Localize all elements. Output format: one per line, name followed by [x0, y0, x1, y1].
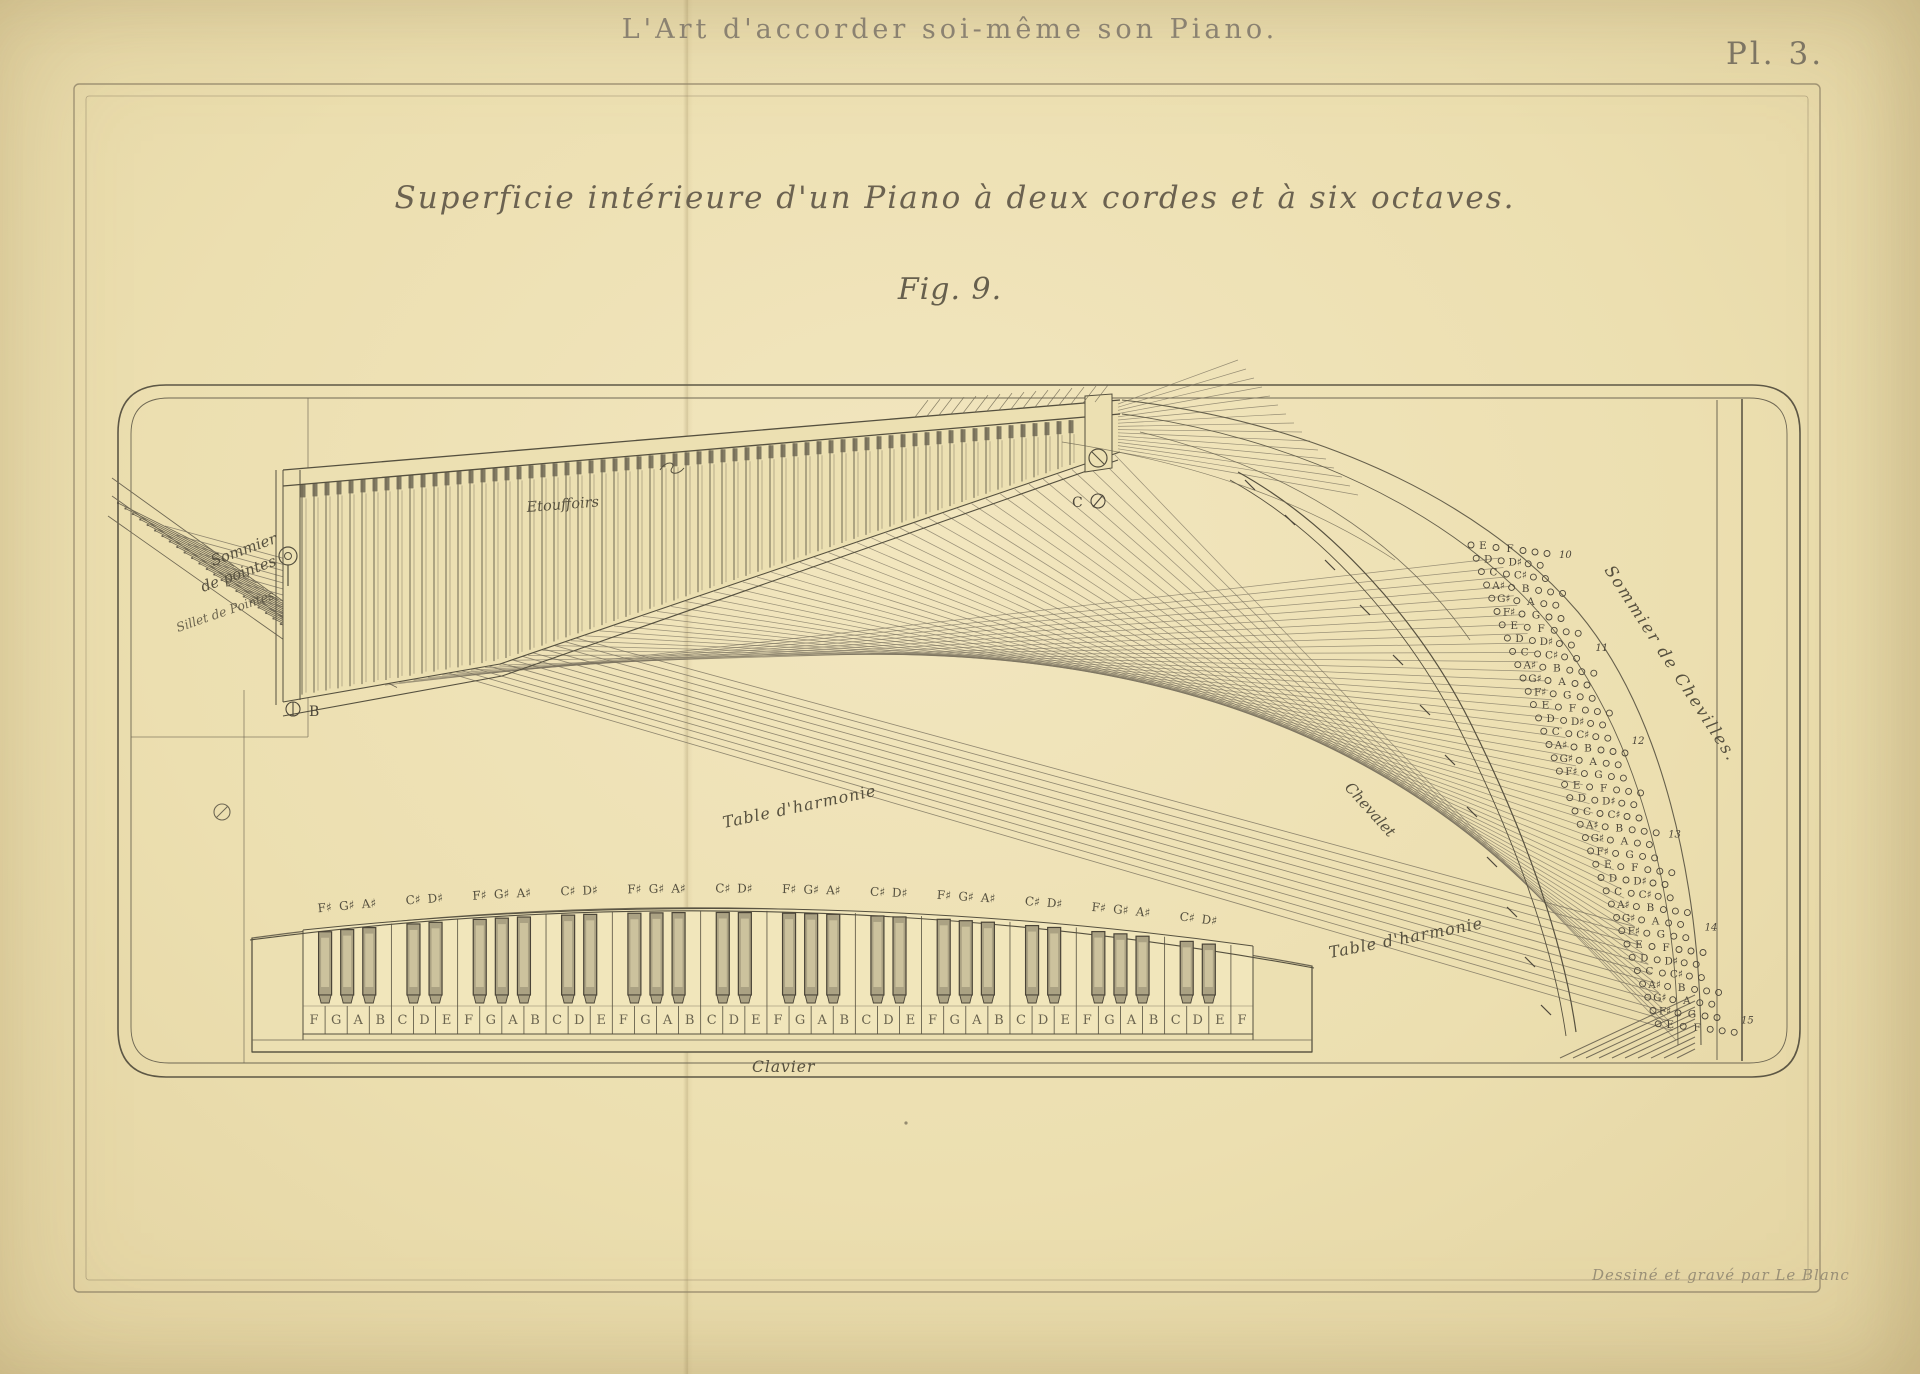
- damper-head: [661, 454, 666, 467]
- tuning-pin: [1537, 562, 1543, 568]
- pin-note-label: C♯: [1514, 570, 1527, 582]
- tuning-pin: [1494, 609, 1500, 615]
- black-key-foot: [783, 995, 795, 1003]
- string-hook: [987, 394, 1000, 411]
- pin-note-label: D: [1484, 553, 1492, 565]
- tuning-pin: [1683, 935, 1689, 941]
- black-key-label: A♯: [360, 896, 377, 911]
- damper-head: [769, 445, 774, 458]
- damper-head: [529, 465, 534, 478]
- damper-head: [721, 449, 726, 462]
- white-key-label: E: [906, 1013, 916, 1028]
- tuning-pin: [1646, 842, 1652, 848]
- white-key-label: A: [662, 1013, 673, 1028]
- gauge-label: 13: [1668, 829, 1681, 840]
- white-key-label: F: [773, 1013, 782, 1028]
- tuning-pin: [1575, 630, 1581, 636]
- black-key-inner: [476, 925, 484, 987]
- hitch-pin-dot: [139, 518, 141, 520]
- hatch-line: [118, 503, 212, 550]
- string-hook: [1011, 392, 1024, 409]
- gauge-label: 15: [1741, 1016, 1754, 1027]
- keyboard-group: FGABCDEFGABCDEFGABCDEFGABCDEFGABCDEFGABC…: [250, 881, 1314, 1052]
- black-key-inner: [1183, 947, 1191, 987]
- black-key-label: F♯: [627, 882, 641, 896]
- tuning-pin: [1558, 616, 1564, 622]
- damper-head: [1021, 424, 1026, 437]
- mark-right-C2: C: [1072, 494, 1105, 511]
- pin-note-label: C: [1552, 726, 1560, 738]
- tuning-pin: [1514, 598, 1520, 604]
- damper-head: [697, 451, 702, 464]
- fan-string-line: [1118, 436, 1318, 450]
- tuning-pin: [1592, 797, 1598, 803]
- tuning-pin: [1631, 802, 1637, 808]
- string-hook: [915, 400, 928, 417]
- circled-mark: [214, 804, 230, 820]
- fan-string-line: [1118, 414, 1286, 423]
- bridge-curve-outer: [1238, 472, 1576, 1032]
- tuning-pin: [1541, 601, 1547, 607]
- black-key-inner: [1050, 933, 1058, 987]
- tuning-pin: [1665, 983, 1671, 989]
- pin-note-label: B: [1553, 663, 1561, 675]
- black-key-foot: [739, 995, 751, 1003]
- white-key-label: D: [419, 1013, 429, 1028]
- hitch-pin-dot: [161, 535, 163, 537]
- tuning-pin: [1545, 678, 1551, 684]
- tuning-pin: [1594, 709, 1600, 715]
- damper-head: [373, 478, 378, 491]
- pin-note-label: B: [1647, 902, 1655, 914]
- white-key-label: C: [1171, 1013, 1181, 1028]
- damper-head: [349, 480, 354, 493]
- hitch-pin-dot: [235, 590, 237, 592]
- tuning-pin: [1588, 720, 1594, 726]
- pin-note-label: D: [1546, 713, 1554, 725]
- pin-note-label: F: [1600, 782, 1607, 794]
- damper-head: [781, 444, 786, 457]
- damper-head: [997, 426, 1002, 439]
- pin-note-label: D: [1515, 633, 1523, 645]
- black-key-inner: [1139, 942, 1147, 987]
- pin-note-label: G: [1563, 689, 1571, 701]
- white-key-label: B: [685, 1013, 695, 1028]
- tuning-pin: [1582, 835, 1588, 841]
- black-key-foot: [650, 995, 662, 1003]
- white-key-label: G: [486, 1013, 496, 1028]
- string-line: [972, 504, 1642, 946]
- tuning-pin: [1571, 744, 1577, 750]
- black-key-label: G♯: [338, 898, 355, 913]
- pin-note-label: B: [1678, 982, 1686, 994]
- tuning-pin: [1608, 774, 1614, 780]
- tuning-pin: [1520, 548, 1526, 554]
- damper-head: [361, 479, 366, 492]
- black-key-inner: [940, 925, 948, 987]
- black-key-foot: [1026, 995, 1038, 1003]
- pin-note-label: F♯: [1503, 607, 1515, 619]
- white-key-label: B: [994, 1013, 1004, 1028]
- piano-interior-diagram: EF10DD♯CC♯A♯BG♯AF♯GEFDD♯11CC♯A♯BG♯AF♯GEF…: [0, 0, 1920, 1374]
- hitch-pin-dot: [124, 507, 126, 509]
- black-key-foot: [982, 995, 994, 1003]
- damper-head: [649, 455, 654, 468]
- white-key-label: A: [816, 1013, 827, 1028]
- pin-note-label: D: [1609, 873, 1617, 885]
- hitch-pin-dot: [169, 540, 171, 542]
- black-key-inner: [652, 919, 660, 987]
- tuning-pin: [1536, 587, 1542, 593]
- white-key-label: A: [507, 1013, 518, 1028]
- pin-note-label: B: [1522, 583, 1530, 595]
- damper-head: [949, 430, 954, 443]
- pin-note-label: C: [1489, 567, 1497, 579]
- pin-note-label: G♯: [1559, 753, 1572, 765]
- black-key-inner: [1094, 938, 1102, 987]
- string-line: [600, 631, 1552, 700]
- black-key-foot: [1092, 995, 1104, 1003]
- string-line: [814, 558, 1603, 842]
- tuning-pin: [1544, 551, 1550, 557]
- tuning-pin: [1530, 574, 1536, 580]
- pin-note-label: C: [1583, 806, 1591, 818]
- tuning-pin: [1678, 921, 1684, 927]
- string-line: [900, 528, 1624, 898]
- black-key-foot: [363, 995, 375, 1003]
- damper-head: [541, 464, 546, 477]
- tuning-pin: [1540, 664, 1546, 670]
- tuning-pin: [1566, 731, 1572, 737]
- pin-note-label: D♯: [1508, 556, 1522, 568]
- white-key-label: F: [1237, 1013, 1246, 1028]
- pin-note-label: A♯: [1522, 660, 1536, 672]
- tuning-pin: [1610, 749, 1616, 755]
- string-line: [614, 626, 1555, 709]
- tuning-pin: [1645, 867, 1651, 873]
- pin-note-label: F♯: [1628, 926, 1640, 938]
- pin-note-label: F♯: [1596, 846, 1608, 858]
- white-key-label: D: [729, 1013, 739, 1028]
- black-key-label: F♯: [782, 882, 796, 896]
- fan-string-line: [1118, 442, 1334, 468]
- pin-note-label: D: [1578, 793, 1586, 805]
- tuning-pin: [1684, 910, 1690, 916]
- pin-note-label: C: [1614, 886, 1622, 898]
- damper-head: [793, 443, 798, 456]
- tuning-pin: [1493, 545, 1499, 551]
- tuning-pin: [1636, 815, 1642, 821]
- black-key-foot: [496, 995, 508, 1003]
- tuning-pin: [1671, 933, 1677, 939]
- damper-head: [925, 432, 930, 445]
- label-chevalet: Chevalet: [1341, 779, 1400, 842]
- damper-head: [937, 431, 942, 444]
- black-key-label: G♯: [649, 882, 665, 896]
- black-key-inner: [741, 919, 749, 987]
- damper-head: [313, 483, 318, 496]
- tuning-pin: [1667, 895, 1673, 901]
- chevalet-tick: [1325, 560, 1335, 570]
- hatch-line: [125, 509, 219, 556]
- pin-note-label: D♯: [1540, 636, 1554, 648]
- tuning-pin: [1484, 582, 1490, 588]
- tuning-pin: [1670, 997, 1676, 1003]
- black-key-label: A♯: [670, 882, 686, 896]
- white-key-label: B: [839, 1013, 849, 1028]
- tuning-pin: [1519, 611, 1525, 617]
- string-line: [800, 562, 1600, 832]
- white-key-label: F: [928, 1013, 937, 1028]
- black-key-label: F♯: [317, 900, 332, 915]
- tuning-pin: [1659, 970, 1665, 976]
- pin-note-label: G♯: [1622, 912, 1635, 924]
- damper-head: [709, 450, 714, 463]
- chevalet-tick: [1445, 755, 1455, 765]
- tuning-pin: [1509, 584, 1515, 590]
- white-key-label: E: [751, 1013, 761, 1028]
- hitch-pin-dot: [280, 623, 282, 625]
- tuning-pin: [1568, 642, 1574, 648]
- black-key-label: D♯: [582, 883, 598, 897]
- tuning-pin: [1556, 641, 1562, 647]
- pin-note-label: G: [1594, 769, 1602, 781]
- damper-head: [829, 440, 834, 453]
- tuning-pin: [1572, 808, 1578, 814]
- tuning-pin: [1535, 651, 1541, 657]
- black-key-foot: [628, 995, 640, 1003]
- tuning-pin: [1589, 695, 1595, 701]
- tuning-pin: [1576, 757, 1582, 763]
- damper-head: [337, 481, 342, 494]
- fan-string-line: [1118, 378, 1254, 410]
- tuning-pin: [1562, 654, 1568, 660]
- chevalet-tick: [1525, 957, 1535, 967]
- hitch-pin-dot: [132, 513, 134, 515]
- damper-head: [301, 484, 306, 497]
- string-line: [957, 509, 1638, 936]
- tuning-pin: [1605, 735, 1611, 741]
- pin-note-label: F♯: [1534, 686, 1546, 698]
- black-key-foot: [673, 995, 685, 1003]
- tuning-pin: [1504, 635, 1510, 641]
- damper-head: [733, 448, 738, 461]
- corner-hatch-line: [1664, 1043, 1695, 1058]
- tuning-pin: [1653, 830, 1659, 836]
- tuning-pin: [1731, 1029, 1737, 1035]
- white-key-label: C: [861, 1013, 871, 1028]
- pin-note-label: G: [1688, 1009, 1696, 1021]
- gauge-label: 11: [1595, 643, 1608, 654]
- white-key-label: E: [597, 1013, 607, 1028]
- pin-note-label: D♯: [1602, 796, 1616, 808]
- tuning-pin: [1644, 930, 1650, 936]
- tuning-pin: [1602, 824, 1608, 830]
- tuning-pin: [1572, 681, 1578, 687]
- pin-note-label: G: [1625, 849, 1633, 861]
- black-key-label: C♯: [560, 884, 576, 899]
- white-key-label: B: [530, 1013, 540, 1028]
- tuning-pin: [1548, 589, 1554, 595]
- tuning-pin: [1686, 973, 1692, 979]
- damper-head: [1045, 422, 1050, 435]
- hitch-pin-dot: [265, 612, 267, 614]
- tuning-pin: [1555, 704, 1561, 710]
- pin-note-label: A♯: [1647, 979, 1661, 991]
- tuning-pin: [1613, 850, 1619, 856]
- pin-note-label: G♯: [1528, 673, 1541, 685]
- fan-string-line: [1118, 396, 1270, 417]
- white-key-label: F: [310, 1013, 319, 1028]
- pin-note-label: C♯: [1607, 809, 1620, 821]
- pin-note-label: F: [1506, 543, 1513, 555]
- tuning-pin: [1530, 702, 1536, 708]
- black-key-inner: [586, 920, 594, 987]
- pin-note-label: A: [1620, 836, 1629, 848]
- black-key-inner: [807, 920, 815, 987]
- pin-note-label: D♯: [1633, 876, 1647, 888]
- label-clavier: Clavier: [752, 1058, 816, 1076]
- damper-head: [457, 471, 462, 484]
- pin-note-label: F: [1569, 703, 1576, 715]
- black-key-label: D♯: [1046, 896, 1063, 911]
- black-key-inner: [1205, 950, 1213, 987]
- black-key-foot: [584, 995, 596, 1003]
- black-key-inner: [829, 920, 837, 987]
- black-key-label: A♯: [825, 883, 841, 897]
- pin-note-label: E: [1510, 620, 1518, 632]
- black-key-label: F♯: [472, 888, 487, 903]
- pin-note-label: G: [1657, 929, 1665, 941]
- tuning-pin: [1619, 800, 1625, 806]
- tuning-pin: [1551, 755, 1557, 761]
- damper-head: [853, 438, 858, 451]
- tuning-pin: [1603, 760, 1609, 766]
- tuning-pin: [1676, 947, 1682, 953]
- hitch-pin-dot: [117, 502, 119, 504]
- tuning-pin: [1598, 747, 1604, 753]
- damper-head: [589, 460, 594, 473]
- black-key-foot: [407, 995, 419, 1003]
- sommier-pointes-block-edges: [108, 478, 312, 654]
- pin-note-label: D♯: [1571, 716, 1585, 728]
- tuning-pin: [1698, 975, 1704, 981]
- fan-string-line: [1118, 449, 1350, 486]
- pin-note-label: A♯: [1585, 819, 1599, 831]
- tuning-pin: [1640, 853, 1646, 859]
- black-key-inner: [343, 936, 351, 987]
- black-key-foot: [1048, 995, 1060, 1003]
- damper-head: [421, 474, 426, 487]
- black-key-label: C♯: [405, 892, 421, 907]
- string-line: [786, 567, 1597, 822]
- damper-head: [445, 472, 450, 485]
- string-hook: [951, 397, 964, 414]
- tuning-pin: [1607, 837, 1613, 843]
- black-key-foot: [717, 995, 729, 1003]
- mark-left-1B: B: [286, 702, 319, 720]
- string-hook: [999, 393, 1012, 410]
- tuning-pin: [1650, 880, 1656, 886]
- black-key-inner: [896, 923, 904, 987]
- fan-string-line: [1118, 423, 1294, 426]
- tuning-pin: [1626, 788, 1632, 794]
- string-hook: [1023, 391, 1036, 408]
- tuning-pin: [1615, 762, 1621, 768]
- white-key-label: C: [552, 1013, 562, 1028]
- pin-note-label: A♯: [1554, 740, 1568, 752]
- black-key-foot: [960, 995, 972, 1003]
- black-key-foot: [1137, 995, 1149, 1003]
- black-key-foot: [805, 995, 817, 1003]
- black-key-label: C♯: [715, 881, 730, 895]
- pin-note-label: E: [1604, 859, 1612, 871]
- tuning-pin: [1593, 734, 1599, 740]
- chevalet-tick: [1487, 857, 1497, 867]
- black-key-label: C♯: [1179, 910, 1196, 926]
- black-key-inner: [1028, 932, 1036, 987]
- black-key-foot: [319, 995, 331, 1003]
- hitch-pin-dot: [191, 557, 193, 559]
- pin-note-label: A: [1588, 756, 1597, 768]
- tuning-pin: [1553, 602, 1559, 608]
- tuning-pin: [1562, 781, 1568, 787]
- tuning-pin: [1639, 917, 1645, 923]
- damper-head: [625, 457, 630, 470]
- black-key-foot: [938, 995, 950, 1003]
- tuning-pin: [1561, 717, 1567, 723]
- tuning-pin: [1515, 662, 1521, 668]
- white-key-label: B: [376, 1013, 386, 1028]
- tuning-pin: [1581, 771, 1587, 777]
- hitch-pin-dot: [206, 568, 208, 570]
- black-key-label: D♯: [737, 882, 753, 896]
- black-key-label: D♯: [892, 886, 908, 901]
- damper-head: [493, 468, 498, 481]
- black-key-label: G♯: [1112, 902, 1129, 918]
- tuning-pin: [1600, 722, 1606, 728]
- pin-note-label: F♯: [1659, 1006, 1671, 1018]
- pin-note-label: C♯: [1545, 649, 1558, 661]
- tuning-pin: [1709, 1001, 1715, 1007]
- tuning-pin: [1688, 948, 1694, 954]
- tuning-pin: [1468, 542, 1474, 548]
- tuning-pin: [1702, 1013, 1708, 1019]
- pin-note-label: F♯: [1565, 766, 1577, 778]
- chevalet-tick: [1507, 907, 1517, 917]
- pin-note-label: E: [1635, 939, 1643, 951]
- pin-note-label: E: [1542, 700, 1550, 712]
- chevalet-tick: [1541, 1005, 1551, 1015]
- black-key-inner: [675, 919, 683, 987]
- pin-note-label: F: [1631, 862, 1638, 874]
- damper-head: [1057, 421, 1062, 434]
- white-key-label: A: [971, 1013, 982, 1028]
- white-key-label: F: [619, 1013, 628, 1028]
- tuning-pin: [1582, 707, 1588, 713]
- pin-note-label: C: [1645, 966, 1653, 978]
- pin-note-label: F: [1662, 942, 1669, 954]
- gauge-label: 10: [1559, 550, 1572, 561]
- black-key-label: D♯: [427, 891, 443, 906]
- black-key-foot: [1203, 995, 1215, 1003]
- pin-note-label: A: [1526, 596, 1535, 608]
- white-key-label: C: [397, 1013, 407, 1028]
- black-key-inner: [520, 923, 528, 987]
- label-sillet: Sillet de Pointes: [174, 587, 276, 635]
- pin-note-label: A♯: [1616, 899, 1630, 911]
- chevalet-tick: [1420, 705, 1430, 715]
